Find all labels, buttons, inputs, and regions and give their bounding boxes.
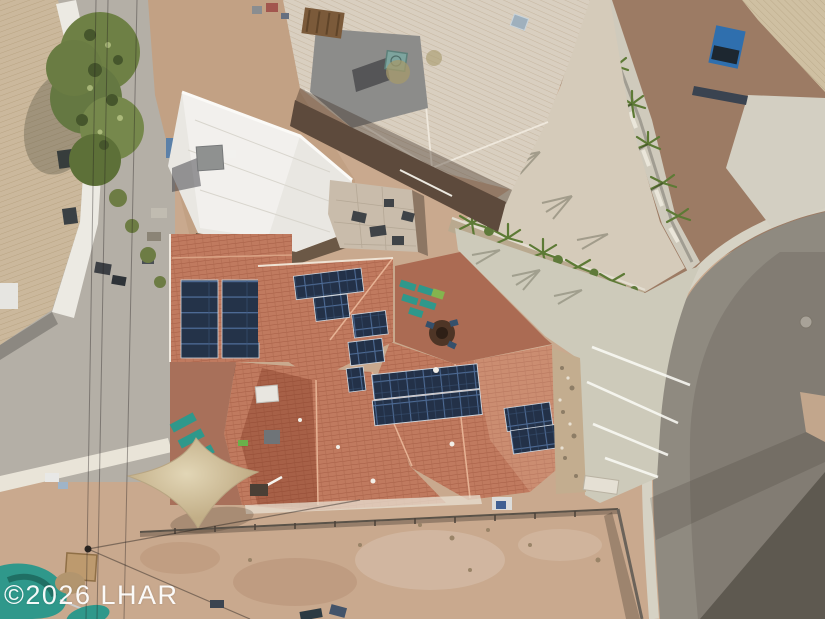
manhole-cover: [800, 316, 812, 328]
roof-vent: [226, 150, 236, 158]
dry-bush: [426, 50, 442, 66]
solar-array-right: [504, 402, 559, 455]
aerial-scene: [0, 0, 825, 619]
dirt-dark-patch: [233, 558, 357, 606]
blue-tarp: [496, 501, 506, 509]
roof-ac-gray: [264, 430, 280, 444]
white-van: [0, 283, 18, 309]
aerial-photo: ©2026 LHAR: [0, 0, 825, 619]
watermark: ©2026 LHAR: [4, 580, 178, 611]
dark-pile: [250, 484, 268, 496]
green-item: [238, 440, 248, 446]
roof-ac-white: [255, 385, 278, 403]
solar-array-carport-right: [222, 280, 259, 358]
solar-array-carport-left: [181, 280, 218, 358]
pergola: [301, 7, 344, 38]
dirt-light-patch: [355, 530, 505, 590]
casita-ac-unit: [196, 145, 224, 171]
dry-bush: [386, 60, 410, 84]
rooftop-deck: [328, 180, 428, 256]
dirt-dark-patch: [140, 542, 220, 574]
window: [62, 207, 78, 225]
